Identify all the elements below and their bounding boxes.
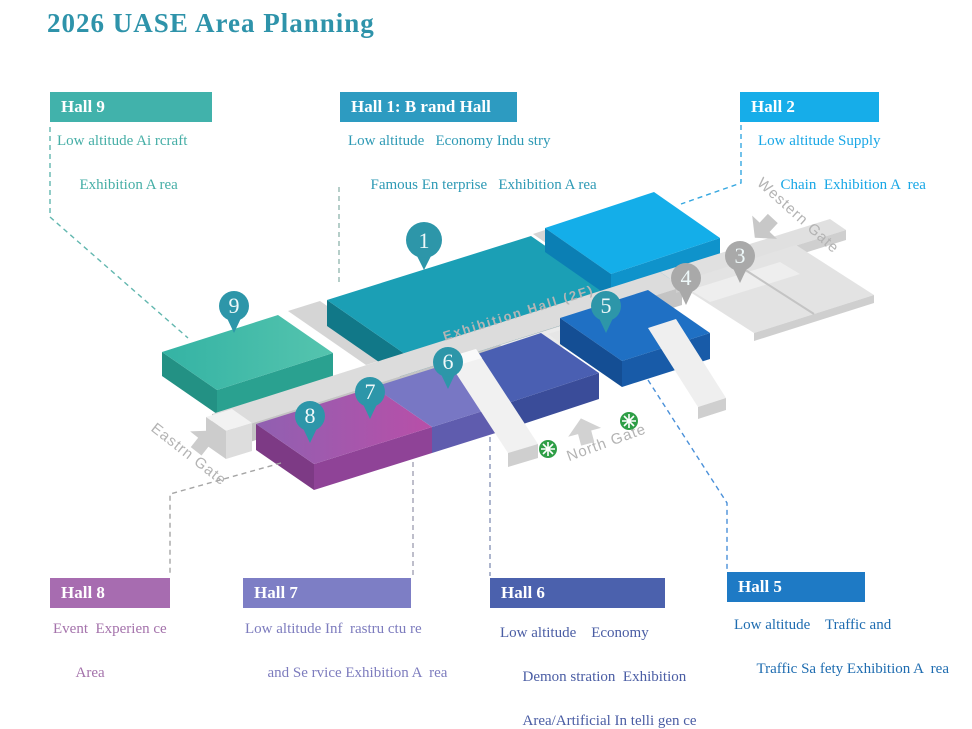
callout-hall8: Hall 8 Event Experien ce Area: [50, 578, 170, 608]
hall1-desc-line1: Low altitude Economy Indu stry: [348, 133, 550, 149]
hall1-header: Hall 1: B rand Hall: [340, 92, 517, 122]
hall2-header: Hall 2: [740, 92, 879, 122]
hall5-desc-line1: Low altitude Traffic and: [734, 617, 891, 633]
hall1-desc: Low altitude Economy Indu stry Famous En…: [348, 130, 628, 196]
callout-hall7: Hall 7 Low altitude Inf rastru ctu re an…: [243, 578, 411, 608]
hall7-desc-line1: Low altitude Inf rastru ctu re: [245, 621, 422, 637]
callout-hall5: Hall 5 Low altitude Traffic and Traffic …: [727, 572, 865, 602]
callout-hall9: Hall 9 Low altitude Ai rcraft Exhibition…: [50, 92, 212, 122]
hall9-desc-line2: Exhibition A rea: [80, 177, 178, 193]
hall7-header: Hall 7: [243, 578, 411, 608]
hall8-desc: Event Experien ce Area: [53, 618, 253, 684]
hall6-desc-line1: Low altitude Economy: [500, 625, 649, 641]
svg-text:7: 7: [365, 379, 376, 404]
hall6-desc: Low altitude Economy Demon stration Exhi…: [500, 622, 730, 729]
hall8-desc-line2: Area: [76, 665, 105, 681]
hall9-desc: Low altitude Ai rcraft Exhibition A rea: [57, 130, 277, 196]
hall8-header: Hall 8: [50, 578, 170, 608]
svg-text:8: 8: [305, 403, 316, 428]
tree-icon: [620, 412, 638, 430]
svg-text:4: 4: [681, 265, 692, 290]
hall6-header: Hall 6: [490, 578, 665, 608]
callout-hall2: Hall 2 Low altitude Supply Chain Exhibit…: [740, 92, 879, 122]
hall9-header: Hall 9: [50, 92, 212, 122]
hall5-desc: Low altitude Traffic and Traffic Sa fety…: [734, 614, 964, 680]
hall5-header: Hall 5: [727, 572, 865, 602]
hall2-desc: Low altitude Supply Chain Exhibition A r…: [758, 130, 958, 196]
hall7-desc: Low altitude Inf rastru ctu re and Se rv…: [245, 618, 475, 684]
slide-canvas: 2026 UASE Area Planning: [0, 0, 972, 729]
hall6-desc-line2: Demon stration Exhibition: [523, 669, 687, 685]
svg-text:9: 9: [229, 293, 240, 318]
pin-1: 1: [406, 222, 442, 270]
leader-hall2: [681, 125, 741, 204]
hall5-desc-line2: Traffic Sa fety Exhibition A rea: [757, 661, 949, 677]
svg-text:1: 1: [419, 228, 430, 253]
hall6-desc-line3: Area/Artificial In telli gen ce: [523, 713, 697, 729]
svg-text:6: 6: [443, 349, 454, 374]
svg-text:5: 5: [601, 293, 612, 318]
hall9-desc-line1: Low altitude Ai rcraft: [57, 133, 187, 149]
hall2-desc-line1: Low altitude Supply: [758, 133, 881, 149]
callout-hall1: Hall 1: B rand Hall Low altitude Economy…: [340, 92, 517, 122]
callout-hall6: Hall 6 Low altitude Economy Demon strati…: [490, 578, 665, 608]
hall8-desc-line1: Event Experien ce: [53, 621, 167, 637]
hall2-desc-line2: Chain Exhibition A rea: [781, 177, 926, 193]
hall7-desc-line2: and Se rvice Exhibition A rea: [268, 665, 448, 681]
tree-icon: [539, 440, 557, 458]
svg-text:3: 3: [735, 243, 746, 268]
hall1-desc-line2: Famous En terprise Exhibition A rea: [371, 177, 597, 193]
